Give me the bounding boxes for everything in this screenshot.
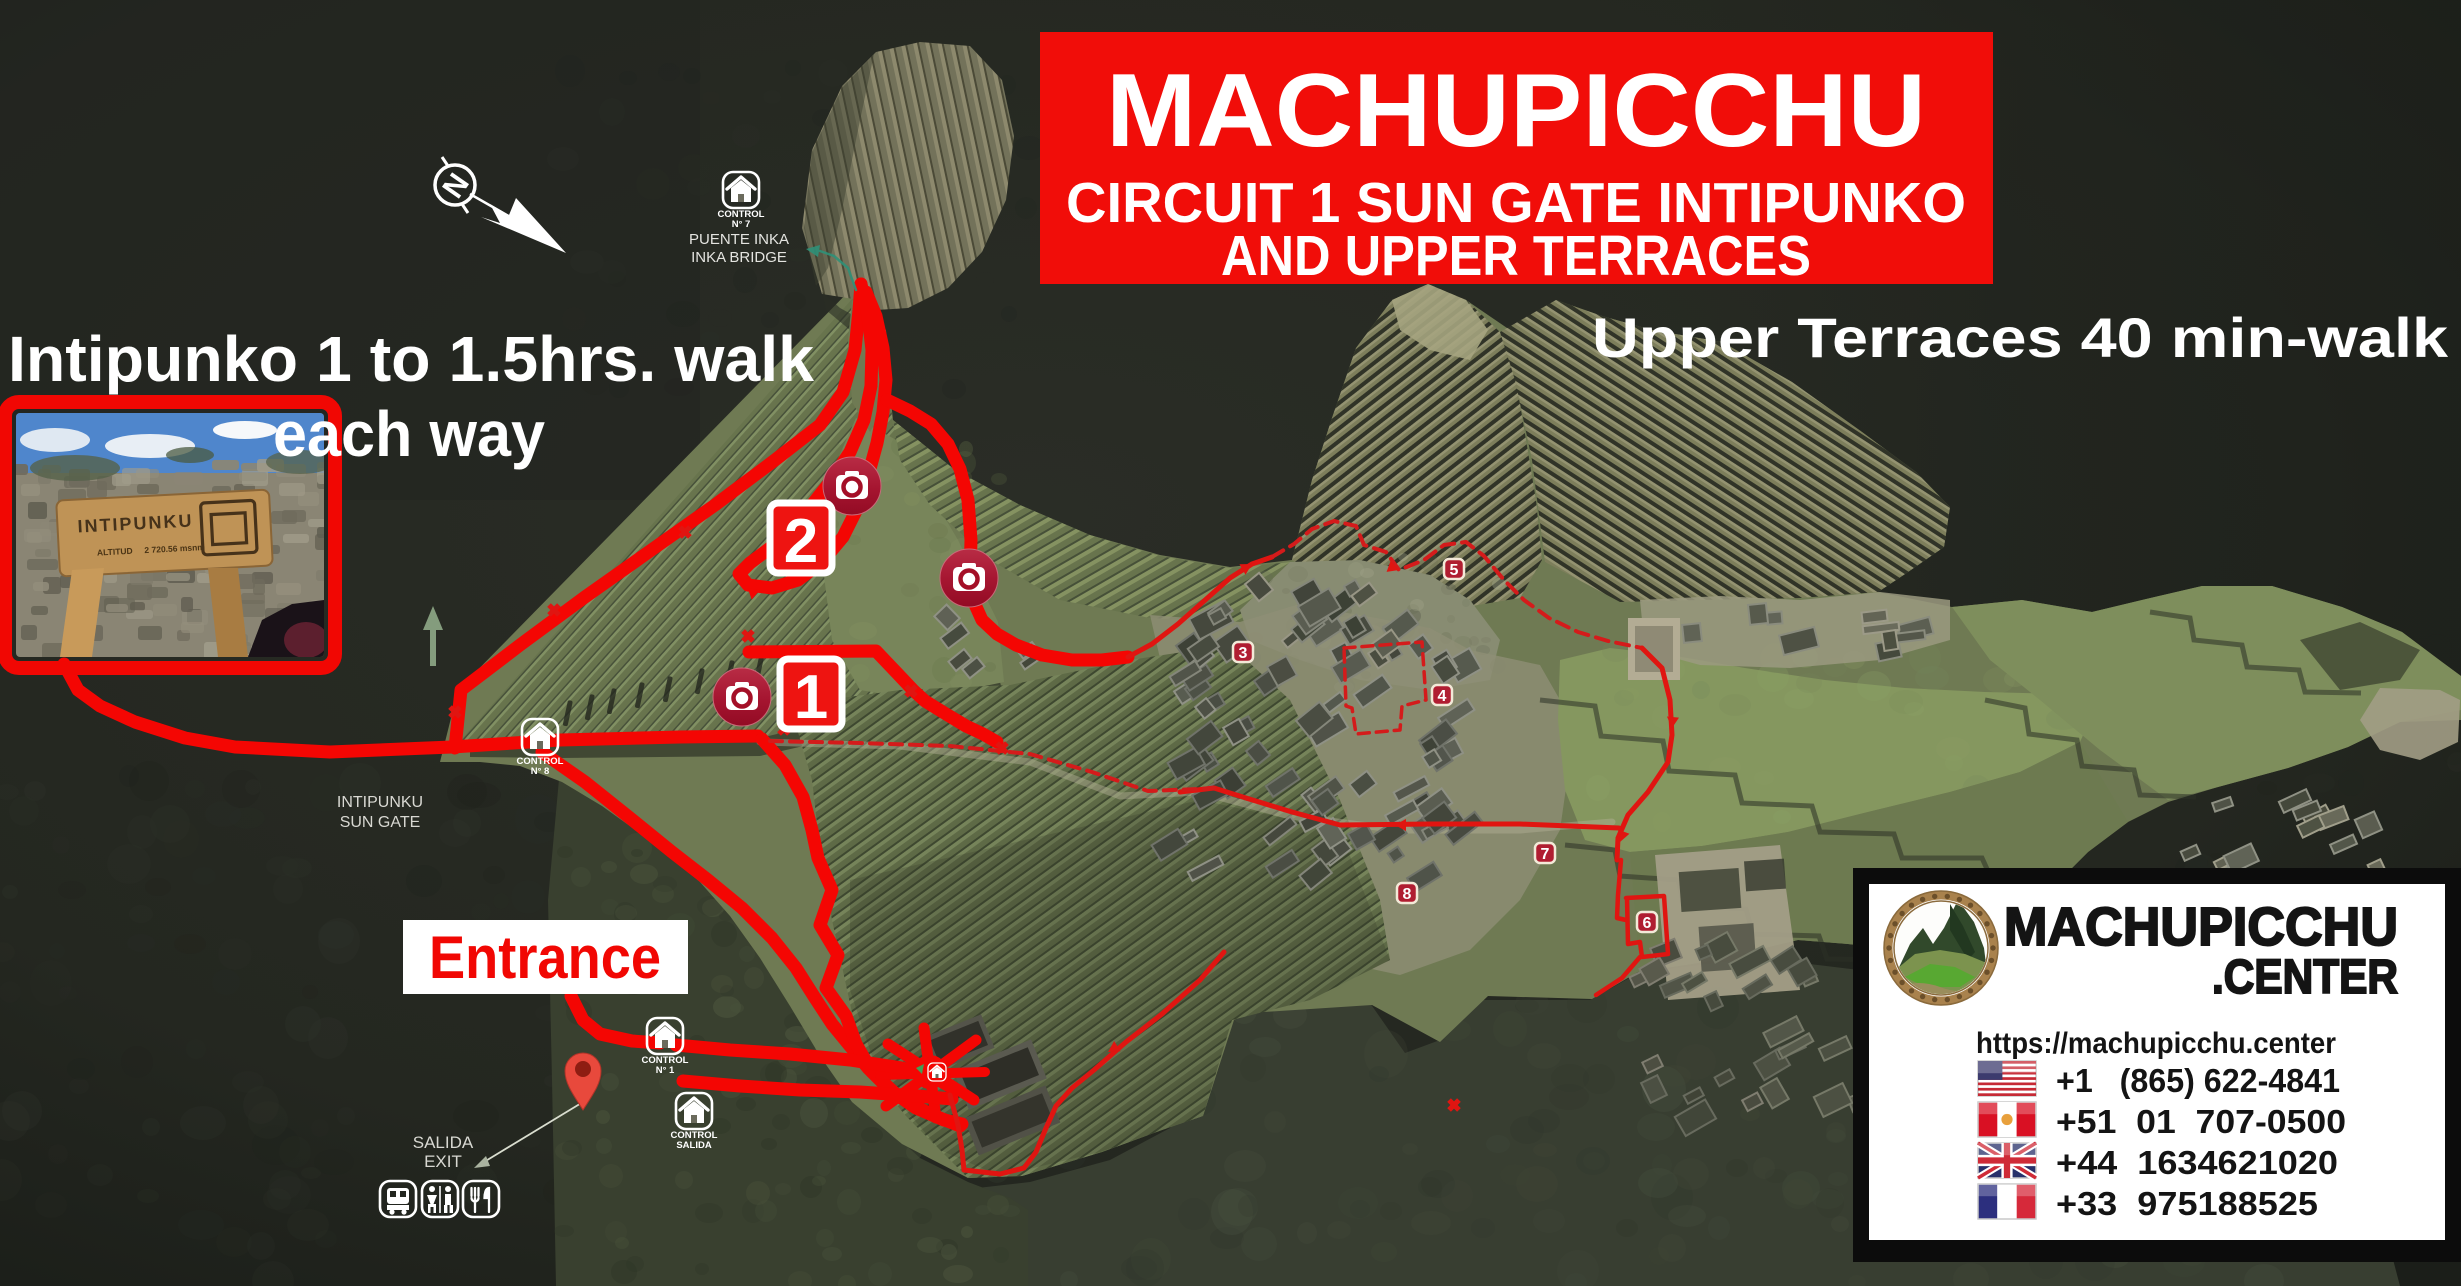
svg-text:1: 1 — [794, 663, 828, 732]
svg-text:INTIPUNKU: INTIPUNKU — [337, 794, 423, 811]
svg-text:7: 7 — [1541, 846, 1550, 863]
svg-text:8: 8 — [1403, 886, 1412, 903]
svg-text:each way: each way — [273, 398, 545, 470]
svg-text:AND UPPER TERRACES: AND UPPER TERRACES — [1221, 224, 1811, 288]
svg-text:https://machupicchu.center: https://machupicchu.center — [1976, 1027, 2336, 1060]
svg-text:.CENTER: .CENTER — [2212, 951, 2398, 1004]
svg-text:+33 975188525: +33 975188525 — [2056, 1185, 2318, 1222]
svg-text:INKA BRIDGE: INKA BRIDGE — [691, 249, 787, 266]
svg-text:4: 4 — [1438, 688, 1447, 705]
svg-text:5: 5 — [1450, 562, 1459, 579]
svg-text:SALIDA: SALIDA — [413, 1133, 474, 1152]
svg-text:+44 1634621020: +44 1634621020 — [2056, 1144, 2338, 1181]
svg-text:N° 7: N° 7 — [732, 219, 751, 230]
svg-text:MACHUPICCHU: MACHUPICCHU — [2004, 897, 2398, 957]
svg-text:6: 6 — [1643, 915, 1652, 932]
svg-text:N° 8: N° 8 — [531, 766, 550, 777]
svg-text:+51 01 707-0500: +51 01 707-0500 — [2056, 1103, 2346, 1140]
svg-text:SUN GATE: SUN GATE — [340, 814, 421, 831]
svg-text:PUENTE INKA: PUENTE INKA — [689, 231, 789, 248]
svg-text:N° 1: N° 1 — [656, 1065, 675, 1076]
svg-text:EXIT: EXIT — [424, 1152, 462, 1171]
svg-text:Upper Terraces 40 min-walk: Upper Terraces 40 min-walk — [1592, 306, 2449, 369]
svg-text:Intipunko 1 to 1.5hrs. walk: Intipunko 1 to 1.5hrs. walk — [8, 323, 814, 395]
svg-text:Entrance: Entrance — [429, 924, 661, 991]
svg-text:MACHUPICCHU: MACHUPICCHU — [1106, 53, 1926, 169]
svg-text:SALIDA: SALIDA — [676, 1140, 712, 1151]
svg-text:2: 2 — [784, 507, 818, 576]
svg-text:+1 (865) 622-4841: +1 (865) 622-4841 — [2056, 1062, 2340, 1099]
svg-text:3: 3 — [1239, 645, 1248, 662]
